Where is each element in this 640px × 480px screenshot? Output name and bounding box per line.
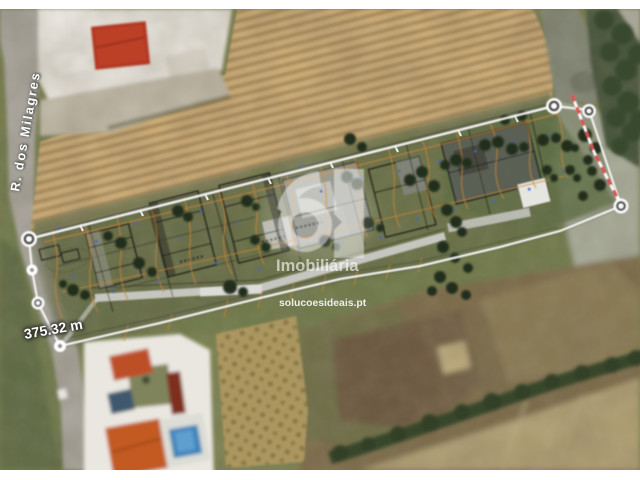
svg-text:solucoesideais.pt: solucoesideais.pt <box>279 298 367 309</box>
svg-text:Imobiliária: Imobiliária <box>276 257 359 275</box>
